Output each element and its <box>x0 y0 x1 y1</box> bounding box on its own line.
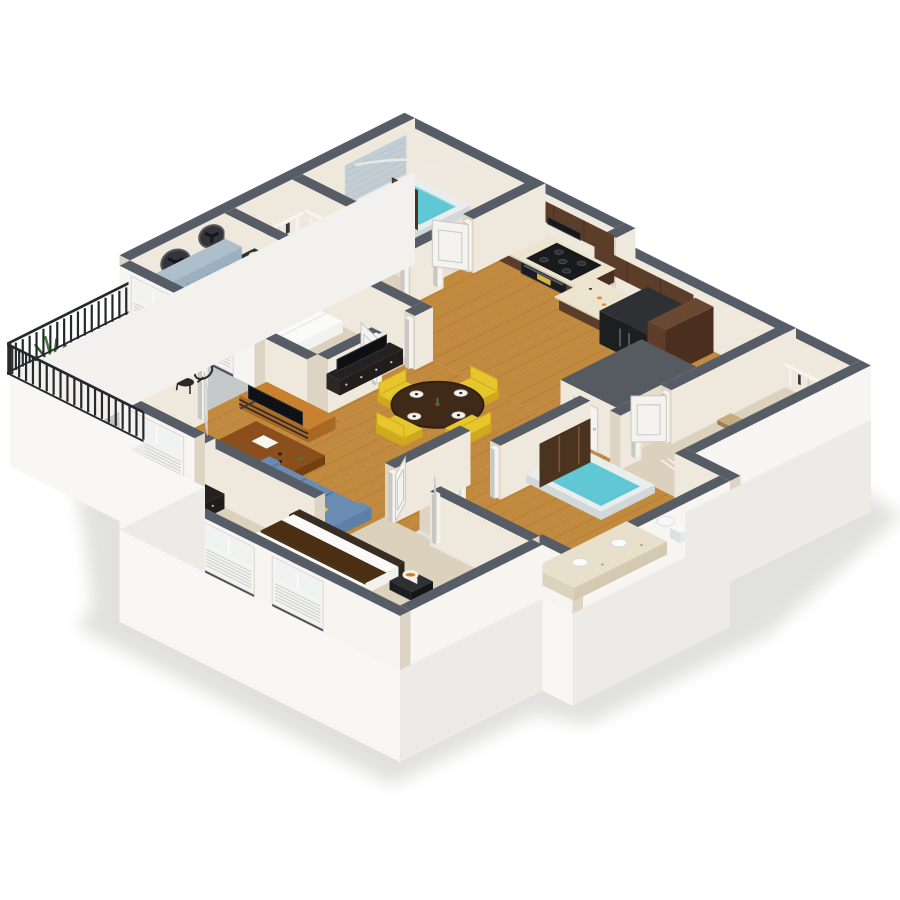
floor-plan-svg <box>0 0 900 900</box>
floor-plan-render: 3D isometric floor plan render of a two-… <box>0 0 900 900</box>
